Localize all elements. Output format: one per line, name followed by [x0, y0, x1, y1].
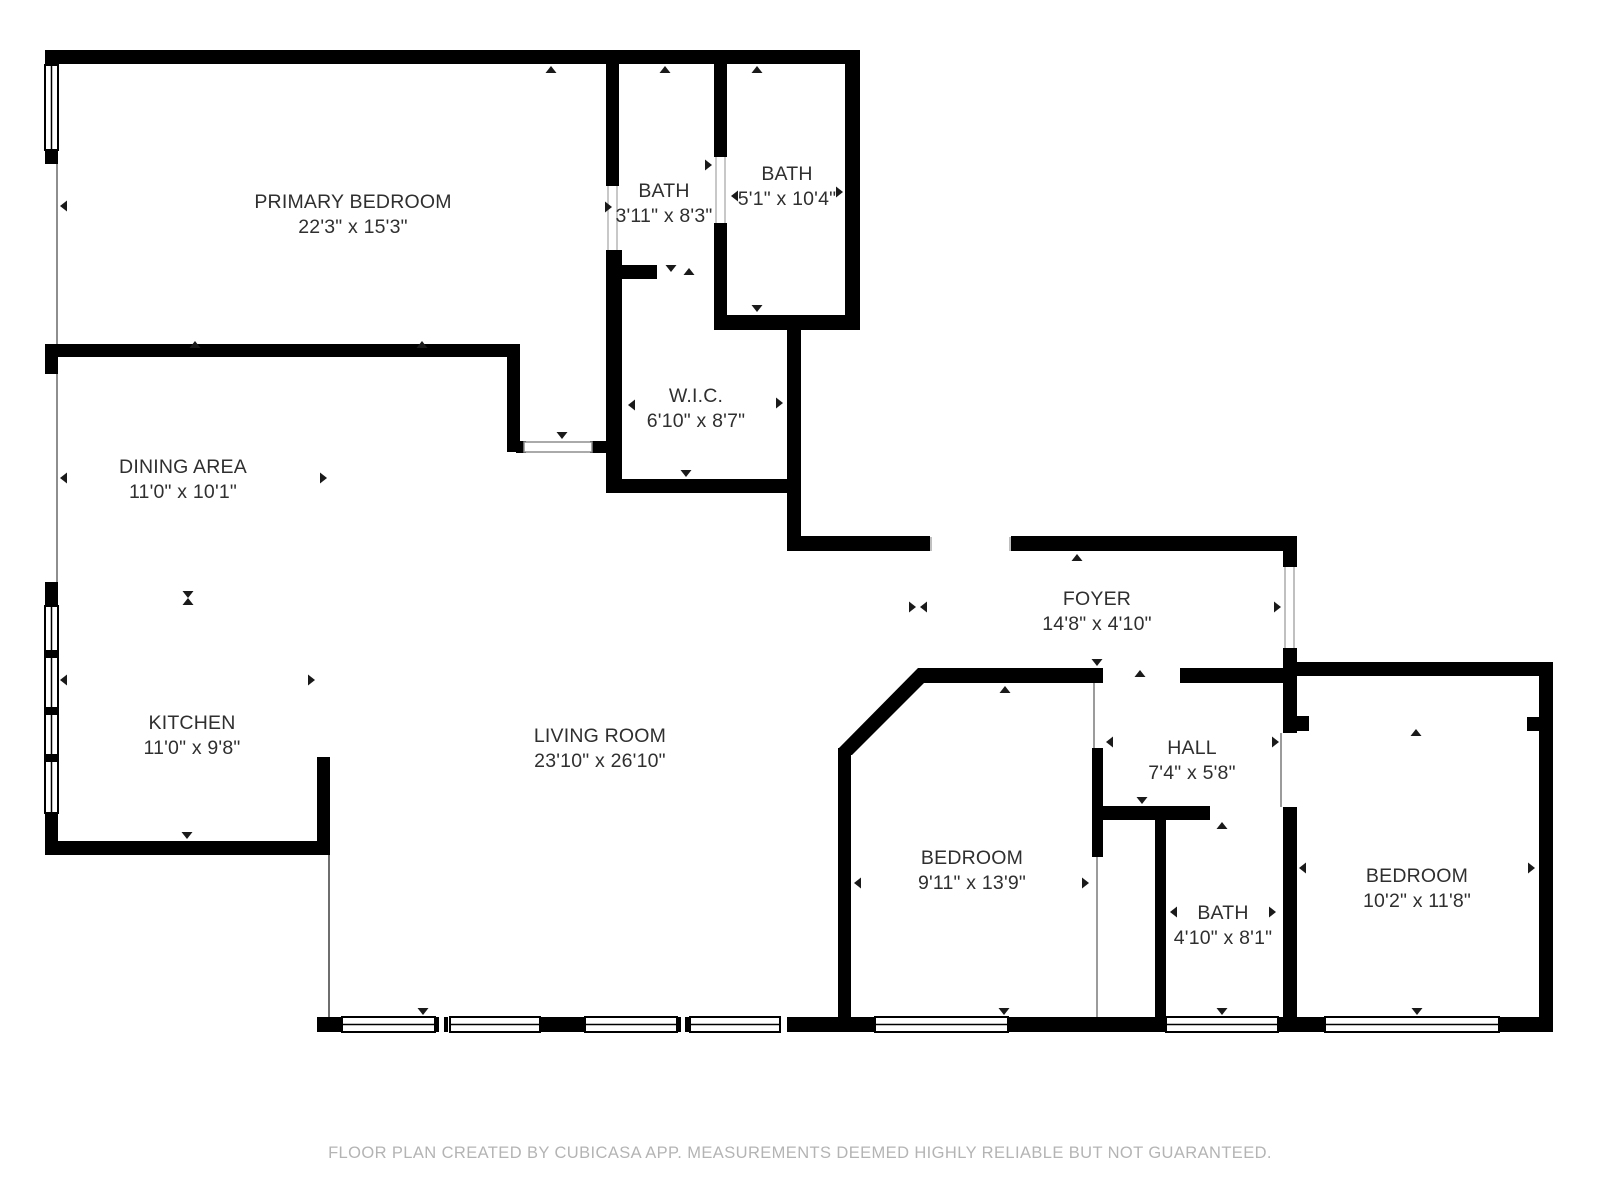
room-label-bedroom-2: BEDROOM10'2" x 11'8" [1363, 864, 1471, 914]
room-name: BEDROOM [918, 846, 1026, 871]
window-divider [685, 1017, 689, 1032]
floor-plan: PRIMARY BEDROOM22'3" x 15'3"BATH3'11" x … [0, 0, 1600, 1200]
dimension-tick [182, 832, 193, 839]
room-dimensions: 5'1" x 10'4" [738, 187, 837, 212]
window-divider [45, 650, 58, 658]
dimension-tick [1000, 686, 1011, 693]
wall [787, 536, 930, 551]
room-label-primary-bedroom: PRIMARY BEDROOM22'3" x 15'3" [254, 190, 451, 240]
room-label-living-room: LIVING ROOM23'10" x 26'10" [534, 724, 666, 774]
dimension-tick [752, 305, 763, 312]
wall [1499, 1017, 1553, 1032]
room-dimensions: 7'4" x 5'8" [1148, 761, 1235, 786]
room-name: BATH [615, 179, 712, 204]
wall [1283, 648, 1297, 733]
window-divider [435, 1017, 439, 1032]
dimension-tick [752, 66, 763, 73]
footer-attribution: FLOOR PLAN CREATED BY CUBICASA APP. MEAS… [0, 1144, 1600, 1163]
door-sill [524, 442, 592, 452]
wall [606, 250, 622, 493]
dimension-tick [836, 187, 843, 198]
dimension-tick [1217, 1008, 1228, 1015]
dimension-tick [1135, 670, 1146, 677]
room-label-bath-primary-small: BATH3'11" x 8'3" [615, 179, 712, 229]
wall [317, 1017, 342, 1032]
room-dimensions: 6'10" x 8'7" [647, 409, 746, 434]
dimension-tick [1412, 1008, 1423, 1015]
dimension-tick [628, 400, 635, 411]
dimension-tick [308, 675, 315, 686]
room-label-dining-area: DINING AREA11'0" x 10'1" [119, 455, 247, 505]
dimension-tick [183, 591, 194, 598]
dimension-tick [1106, 737, 1113, 748]
room-dimensions: 4'10" x 8'1" [1174, 926, 1273, 951]
room-name: BEDROOM [1363, 864, 1471, 889]
wall [507, 344, 520, 452]
wall [1283, 536, 1297, 567]
dimension-tick [1274, 602, 1281, 613]
window-divider [444, 1017, 448, 1032]
wall [1297, 716, 1309, 731]
wall [45, 344, 507, 357]
wall [606, 64, 619, 186]
wall [1283, 662, 1553, 676]
room-dimensions: 22'3" x 15'3" [254, 215, 451, 240]
window-divider [677, 1017, 681, 1032]
dimension-tick [999, 1008, 1010, 1015]
dimension-tick [705, 160, 712, 171]
dimension-tick [183, 598, 194, 605]
window-divider [45, 707, 58, 715]
room-name: KITCHEN [143, 711, 240, 736]
wall [45, 150, 58, 164]
room-label-hall: HALL7'4" x 5'8" [1148, 736, 1235, 786]
dimension-tick [546, 66, 557, 73]
room-dimensions: 23'10" x 26'10" [534, 749, 666, 774]
dimension-tick [1299, 863, 1306, 874]
wall [838, 748, 851, 1017]
dimension-tick [60, 201, 67, 212]
dimension-tick [854, 878, 861, 889]
wall [787, 1017, 875, 1032]
wall [606, 479, 801, 493]
room-name: LIVING ROOM [534, 724, 666, 749]
wall [45, 841, 330, 855]
wall [1008, 1017, 1166, 1032]
dimension-tick [660, 66, 671, 73]
wall [714, 223, 727, 315]
wall [714, 64, 727, 157]
dimension-tick [1072, 554, 1083, 561]
wall [1539, 662, 1553, 1032]
wall [1011, 536, 1297, 551]
dimension-tick [418, 1008, 429, 1015]
room-dimensions: 10'2" x 11'8" [1363, 889, 1471, 914]
room-label-kitchen: KITCHEN11'0" x 9'8" [143, 711, 240, 761]
room-name: BATH [1174, 901, 1273, 926]
room-dimensions: 3'11" x 8'3" [615, 204, 712, 229]
wall [1092, 748, 1103, 857]
wall [1527, 717, 1539, 731]
dimension-tick [1092, 659, 1103, 666]
wall [45, 50, 860, 64]
dimension-tick [1528, 863, 1535, 874]
wall [1283, 807, 1297, 1032]
room-name: W.I.C. [647, 384, 746, 409]
wall [619, 265, 657, 279]
room-label-bedroom-1: BEDROOM9'11" x 13'9" [918, 846, 1026, 896]
room-label-foyer: FOYER14'8" x 4'10" [1042, 587, 1152, 637]
dimension-tick [557, 432, 568, 439]
dimension-tick [666, 265, 677, 272]
room-dimensions: 9'11" x 13'9" [918, 871, 1026, 896]
wall [787, 330, 801, 551]
wall [918, 668, 1103, 683]
wall [714, 315, 860, 330]
window-divider [45, 754, 58, 762]
room-dimensions: 11'0" x 9'8" [143, 736, 240, 761]
wall [1180, 668, 1283, 683]
dimension-tick [1217, 822, 1228, 829]
wall [317, 757, 330, 855]
dimension-tick [909, 602, 916, 613]
dimension-tick [920, 602, 927, 613]
room-dimensions: 11'0" x 10'1" [119, 480, 247, 505]
room-label-bath-hall: BATH4'10" x 8'1" [1174, 901, 1273, 951]
dimension-tick [60, 675, 67, 686]
wall [1092, 806, 1210, 820]
room-name: BATH [738, 162, 837, 187]
room-name: FOYER [1042, 587, 1152, 612]
wall [845, 50, 860, 330]
room-name: DINING AREA [119, 455, 247, 480]
room-label-wic: W.I.C.6'10" x 8'7" [647, 384, 746, 434]
wall-diagonal [838, 668, 939, 755]
dimension-tick [1137, 797, 1148, 804]
room-name: PRIMARY BEDROOM [254, 190, 451, 215]
room-name: HALL [1148, 736, 1235, 761]
wall [45, 582, 58, 606]
dimension-tick [684, 268, 695, 275]
dimension-tick [1082, 878, 1089, 889]
dimension-tick [320, 473, 327, 484]
room-label-bath-primary-large: BATH5'1" x 10'4" [738, 162, 837, 212]
dimension-tick [681, 470, 692, 477]
dimension-tick [1411, 729, 1422, 736]
dimension-tick [1272, 737, 1279, 748]
room-dimensions: 14'8" x 4'10" [1042, 612, 1152, 637]
wall [540, 1017, 585, 1032]
wall [1278, 1017, 1325, 1032]
dimension-tick [776, 398, 783, 409]
dimension-tick [60, 473, 67, 484]
wall [1155, 820, 1166, 1032]
